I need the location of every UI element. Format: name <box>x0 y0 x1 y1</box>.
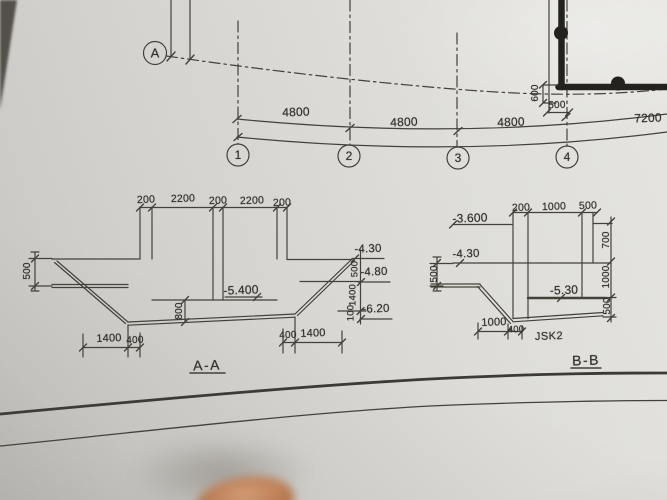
aa-right-dim: 500 <box>350 261 360 277</box>
aa-bottom-dim: 400 <box>126 336 144 347</box>
grid-bubble-2: 2 <box>346 150 353 162</box>
span-dim-label: 4800 <box>390 116 418 129</box>
aa-right-dim: 100 <box>346 305 356 321</box>
sheet-border <box>0 373 667 446</box>
wall-section-lines <box>513 213 528 319</box>
grid-bubble-3: 3 <box>455 152 462 164</box>
paper-edge <box>0 0 17 110</box>
aa-top-dim: 200 <box>273 197 291 208</box>
column-dot <box>554 26 568 40</box>
span-dim-label: 4800 <box>497 116 525 129</box>
bb-top-dim: 500 <box>579 200 597 211</box>
aa-top-dim: 2200 <box>240 195 265 206</box>
blueprint-photo: A 1 2 3 4 4800 4800 4800 7200 600 500 20… <box>0 0 667 500</box>
step-lines <box>582 213 593 298</box>
aa-section-title: A-A <box>193 358 221 373</box>
bb-left-height-dim: 500 <box>430 265 440 282</box>
building-edge-lines <box>171 0 190 59</box>
bb-right-dim: 1000 <box>602 265 612 288</box>
aa-top-dim: 200 <box>209 195 227 206</box>
bb-pit-label: JSK2 <box>535 331 564 343</box>
grid-bubble-1: 1 <box>235 149 242 161</box>
pit-bottom-lines <box>128 314 295 325</box>
span-dim-label: 7200 <box>634 112 662 125</box>
aa-bottom-dim: 1400 <box>96 333 122 345</box>
bb-level-label: -5.30 <box>550 284 579 297</box>
left-ground-double-line <box>52 285 128 288</box>
section-bb-linework <box>430 209 616 368</box>
corner-dim-label: 600 <box>531 84 541 101</box>
column-dot <box>611 77 625 91</box>
aa-top-dim: 2200 <box>171 193 196 204</box>
row-bubble-label: A <box>151 47 160 60</box>
bb-right-dim: 700 <box>602 231 612 248</box>
grid-bubble-4: 4 <box>564 151 571 163</box>
wall-section-lines <box>140 207 287 300</box>
aa-top-dim: 200 <box>137 194 155 205</box>
bb-top-dim: 200 <box>512 202 530 213</box>
aa-left-height-dim: 500 <box>23 262 33 279</box>
aa-depth-dim: 800 <box>175 302 185 319</box>
aa-level-label: -4.80 <box>360 267 388 279</box>
dimension-line-lower <box>237 132 667 147</box>
bb-level-label: -3.600 <box>452 211 488 224</box>
span-dim-label: 4800 <box>282 106 310 119</box>
section-aa-linework <box>29 204 392 373</box>
pit-bottom-lines <box>513 313 603 322</box>
aa-right-dim: 1400 <box>348 284 358 306</box>
plan-view <box>144 0 667 169</box>
drawing-linework <box>0 0 667 500</box>
aa-level-label: -6.20 <box>362 304 390 316</box>
bb-level-label: -4.30 <box>452 249 480 261</box>
bb-right-dim: 500 <box>603 297 613 314</box>
left-slope-lines <box>55 261 129 324</box>
bb-bottom-dim: 1000 <box>481 317 507 329</box>
aa-level-label: -5.400 <box>223 283 259 296</box>
bb-section-title: B-B <box>572 353 600 368</box>
aa-bottom-dim: 1400 <box>300 328 326 340</box>
corner-dim-label: 500 <box>548 101 566 112</box>
aa-bottom-dim: 400 <box>279 331 297 342</box>
bb-top-dim: 1000 <box>542 201 567 212</box>
bb-bottom-dim: 400 <box>508 325 525 335</box>
aa-level-label: -4.30 <box>354 244 382 256</box>
